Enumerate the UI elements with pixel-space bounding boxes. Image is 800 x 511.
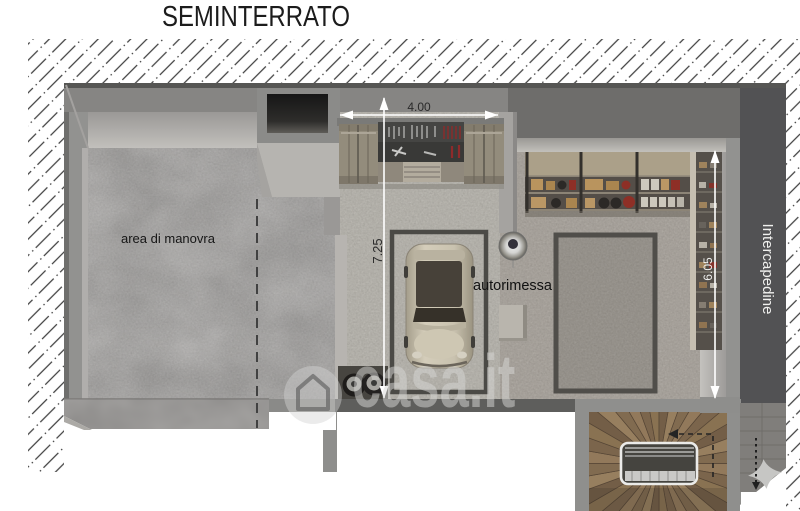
svg-text:area di manovra: area di manovra	[121, 231, 216, 246]
svg-text:4.00: 4.00	[407, 100, 431, 114]
svg-text:6.05: 6.05	[701, 257, 715, 281]
svg-text:Intercapedine: Intercapedine	[759, 224, 776, 315]
svg-text:7.25: 7.25	[370, 238, 385, 263]
svg-text:autorimessa: autorimessa	[473, 278, 553, 294]
svg-text:casa.it: casa.it	[352, 339, 515, 424]
svg-text:SEMINTERRATO: SEMINTERRATO	[162, 1, 350, 33]
